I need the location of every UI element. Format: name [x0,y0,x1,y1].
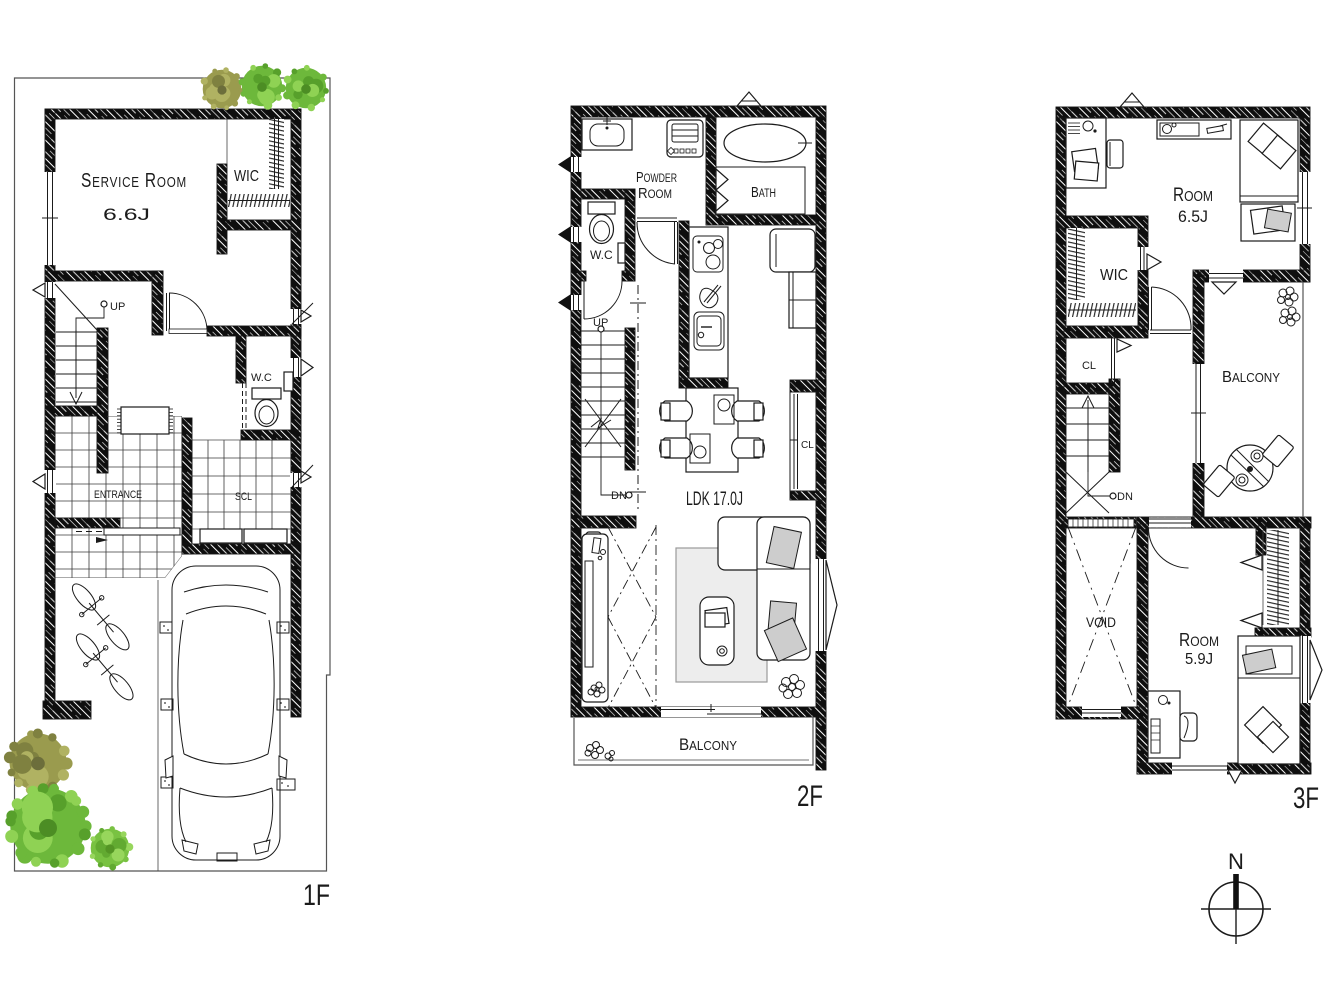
svg-text:VOID: VOID [1086,614,1116,630]
svg-text:UP: UP [593,317,608,329]
svg-text:DN: DN [611,490,627,502]
svg-text:5.9J: 5.9J [1185,651,1213,668]
svg-text:SERVICE ROOM: SERVICE ROOM [81,170,187,192]
svg-text:CL: CL [1082,360,1096,372]
svg-text:3F: 3F [1293,782,1319,815]
svg-text:1F: 1F [303,879,330,912]
svg-text:2F: 2F [797,780,823,813]
svg-text:ROOM: ROOM [1173,185,1213,206]
svg-text:ROOM: ROOM [1179,630,1219,650]
svg-text:W.C: W.C [590,248,613,262]
svg-text:DN: DN [1117,491,1133,503]
svg-text:BALCONY: BALCONY [679,735,737,754]
svg-text:6.5J: 6.5J [1178,207,1208,226]
svg-text:N: N [1228,849,1244,874]
svg-text:WIC: WIC [1100,267,1128,284]
svg-text:UP: UP [110,301,125,313]
svg-text:SCL: SCL [235,491,252,503]
svg-text:LDK 17.0J: LDK 17.0J [686,489,743,510]
svg-text:6.6J: 6.6J [103,205,150,224]
svg-text:WIC: WIC [234,168,259,185]
svg-text:ENTRANCE: ENTRANCE [94,489,142,501]
svg-text:BALCONY: BALCONY [1222,369,1281,386]
svg-text:CL: CL [801,440,814,451]
svg-text:W.C: W.C [251,372,272,384]
